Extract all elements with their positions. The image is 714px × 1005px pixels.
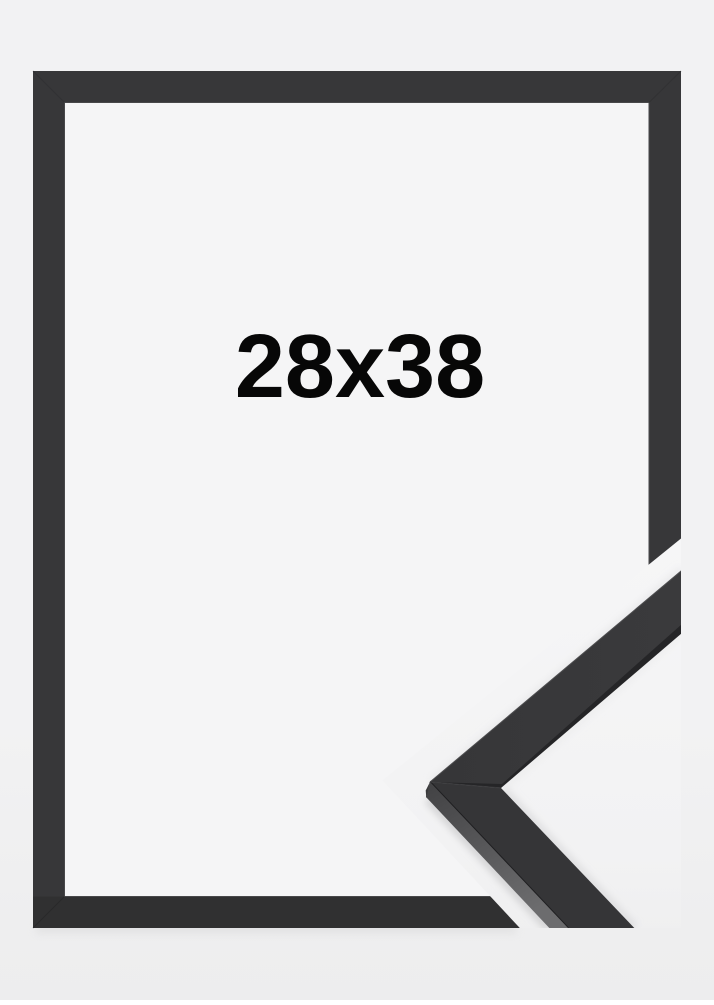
svg-text:28x38: 28x38 <box>235 317 485 417</box>
